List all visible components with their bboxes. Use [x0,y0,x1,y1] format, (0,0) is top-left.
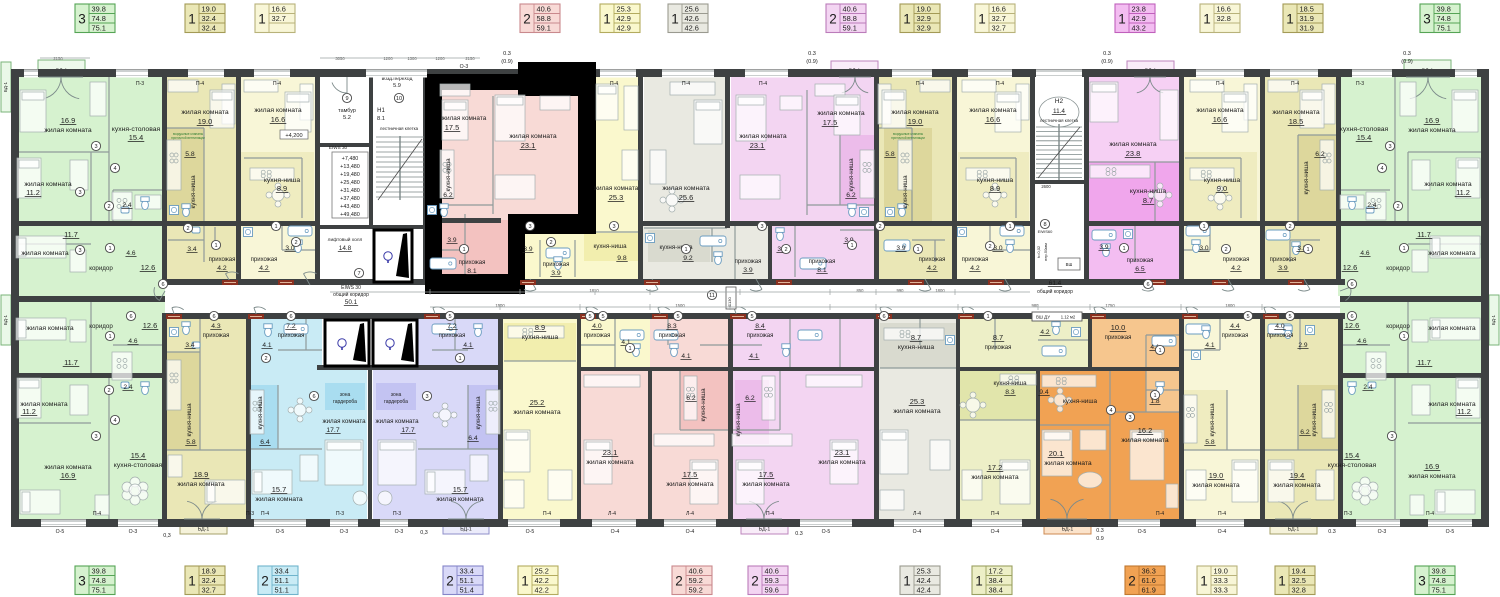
svg-text:EIWS 30: EIWS 30 [329,145,348,150]
svg-text:+13,480: +13,480 [340,164,360,170]
svg-text:БД-1: БД-1 [3,314,8,325]
svg-text:1: 1 [108,334,111,340]
svg-text:1: 1 [1402,246,1405,252]
svg-text:5: 5 [676,314,679,320]
svg-text:25.2: 25.2 [535,567,549,576]
svg-text:16.6: 16.6 [271,115,285,124]
svg-text:кухня-ниша: кухня-ниша [257,396,264,430]
svg-text:4.2: 4.2 [1040,329,1049,336]
svg-text:61.6: 61.6 [1142,576,1156,585]
svg-text:кухня-ниша: кухня-ниша [264,177,301,184]
svg-text:40.6: 40.6 [537,5,551,14]
svg-text:2: 2 [1224,247,1227,253]
svg-text:H1: H1 [377,108,385,114]
svg-text:2: 2 [1396,204,1399,210]
svg-text:4: 4 [113,166,116,172]
svg-text:жилая комната: жилая комната [1121,437,1169,444]
svg-text:12.6: 12.6 [141,263,155,272]
svg-text:43.2: 43.2 [1132,24,1146,33]
svg-text:прихожая: прихожая [209,257,236,263]
svg-text:4.6: 4.6 [1360,250,1369,257]
svg-text:П-4: П-4 [1218,511,1226,517]
svg-text:1: 1 [978,11,986,26]
svg-text:33.4: 33.4 [460,567,474,576]
svg-text:3.9: 3.9 [896,245,905,252]
svg-text:1: 1 [1278,573,1286,588]
svg-text:1: 1 [603,11,611,26]
svg-text:39.8: 39.8 [1437,5,1451,14]
svg-text:П-4: П-4 [196,81,204,87]
svg-text:2150: 2150 [465,56,475,61]
svg-text:8.7: 8.7 [1143,196,1153,205]
svg-text:П-3: П-3 [1344,511,1352,517]
svg-text:П-4: П-4 [759,81,767,87]
svg-text:11.2: 11.2 [1457,407,1471,416]
svg-text:1: 1 [986,314,989,320]
svg-text:Л-4: Л-4 [608,511,616,517]
svg-text:12.6: 12.6 [1345,321,1359,330]
svg-text:8.9: 8.9 [535,323,545,332]
svg-text:1: 1 [1202,224,1205,230]
svg-text:39.8: 39.8 [92,5,106,14]
svg-text:БД-1: БД-1 [1288,527,1300,533]
svg-text:О-3: О-3 [340,529,349,535]
svg-text:(0.9): (0.9) [806,59,818,65]
svg-text:4.2: 4.2 [259,265,269,272]
svg-text:+43,480: +43,480 [340,204,360,210]
svg-text:БД-1: БД-1 [759,527,771,533]
svg-text:2: 2 [523,11,531,26]
svg-text:7.2: 7.2 [286,323,296,330]
svg-text:1: 1 [684,247,687,253]
svg-text:2: 2 [107,204,110,210]
svg-text:2: 2 [261,573,269,588]
svg-text:58.8: 58.8 [537,14,551,23]
svg-text:42.2: 42.2 [535,576,549,585]
svg-text:кухня-ниша: кухня-ниша [522,334,559,341]
svg-text:15.4: 15.4 [1357,133,1371,142]
svg-text:2: 2 [675,573,683,588]
svg-text:3: 3 [425,394,428,400]
svg-text:12.6: 12.6 [1343,263,1357,272]
svg-text:2: 2 [829,11,837,26]
svg-text:25.6: 25.6 [685,5,699,14]
svg-text:1: 1 [1306,247,1309,253]
svg-text:19.0: 19.0 [908,117,922,126]
svg-text:1: 1 [903,573,911,588]
svg-text:+37,480: +37,480 [340,196,360,202]
svg-text:61.4: 61.4 [1049,280,1062,287]
svg-text:5: 5 [1288,314,1291,320]
svg-text:42.2: 42.2 [535,586,549,595]
svg-text:2: 2 [107,388,110,394]
svg-text:прихожая: прихожая [203,333,230,339]
svg-text:О-4: О-4 [686,529,695,535]
svg-text:3.9: 3.9 [1099,244,1108,251]
svg-text:19.0: 19.0 [202,5,216,14]
svg-text:4.1: 4.1 [262,342,271,349]
svg-text:19.0: 19.0 [198,117,212,126]
svg-text:жилая комната: жилая комната [44,464,92,471]
svg-text:17.7: 17.7 [326,427,339,434]
svg-text:2: 2 [186,226,189,232]
svg-text:5.9: 5.9 [393,83,401,89]
svg-text:16.9: 16.9 [1425,462,1439,471]
svg-text:П-4: П-4 [1216,81,1224,87]
svg-text:жилая комната: жилая комната [255,496,303,503]
svg-text:25.3: 25.3 [617,5,631,14]
svg-text:О-3: О-3 [129,529,138,535]
svg-text:4.6: 4.6 [126,250,135,257]
svg-text:h=0,02: h=0,02 [1036,245,1041,258]
svg-text:6.5: 6.5 [1135,266,1145,273]
svg-text:59.6: 59.6 [765,586,779,595]
svg-text:лестничная клетка: лестничная клетка [380,126,419,131]
svg-text:П-4: П-4 [1426,511,1434,517]
svg-text:БД-1: БД-1 [198,527,210,533]
svg-text:кухня-ниша: кухня-ниша [1303,161,1310,195]
svg-text:17.5: 17.5 [445,123,459,132]
svg-text:П-3: П-3 [246,511,254,517]
svg-text:0.3: 0.3 [808,51,816,57]
svg-text:1: 1 [1118,11,1126,26]
svg-text:32.9: 32.9 [917,24,931,33]
svg-text:0.9: 0.9 [1096,536,1104,542]
svg-text:19.0: 19.0 [1214,567,1228,576]
svg-text:16.6: 16.6 [1217,5,1231,14]
svg-text:51.1: 51.1 [460,576,474,585]
svg-text:жилая комната: жилая комната [1428,250,1476,257]
svg-text:17.2: 17.2 [989,567,1003,576]
svg-text:3.9: 3.9 [447,237,456,244]
svg-text:74.8: 74.8 [92,576,106,585]
svg-text:1: 1 [628,346,631,352]
svg-text:2: 2 [294,240,297,246]
svg-text:П-4: П-4 [273,81,281,87]
svg-text:3.9: 3.9 [551,270,561,277]
svg-text:жилая комната: жилая комната [1044,460,1092,467]
svg-text:1: 1 [1158,348,1161,354]
svg-text:коридор: коридор [89,323,113,330]
svg-text:16.9: 16.9 [1425,116,1439,125]
svg-text:4.1: 4.1 [749,353,758,360]
svg-text:Л-4: Л-4 [686,511,694,517]
svg-text:4.2: 4.2 [1231,265,1241,272]
svg-text:11.4: 11.4 [1053,108,1065,115]
svg-text:1: 1 [671,11,679,26]
svg-text:18.5: 18.5 [1300,5,1314,14]
svg-text:8.9: 8.9 [990,184,1000,193]
svg-text:1.12 м2: 1.12 м2 [1061,315,1076,320]
svg-text:2: 2 [1128,573,1136,588]
svg-text:кухня-ниша: кухня-ниша [1063,398,1098,405]
svg-text:36.3: 36.3 [1142,567,1156,576]
svg-text:прихожая: прихожая [919,257,946,263]
svg-text:жилая комната: жилая комната [586,459,634,466]
svg-text:42.6: 42.6 [685,24,699,33]
svg-text:3.0: 3.0 [1199,245,1208,252]
svg-text:2: 2 [878,224,881,230]
svg-text:32.4: 32.4 [202,14,216,23]
svg-text:16.2: 16.2 [1138,426,1152,435]
svg-text:17.5: 17.5 [823,118,837,127]
svg-text:5: 5 [601,314,604,320]
svg-text:8.4: 8.4 [755,323,765,330]
svg-text:2600: 2600 [1041,184,1051,189]
svg-text:жилая комната: жилая комната [742,481,790,488]
svg-text:23.1: 23.1 [603,448,617,457]
svg-text:жилая комната: жилая комната [1196,107,1244,114]
svg-text:прихожая: прихожая [439,333,466,339]
svg-text:16.6: 16.6 [986,115,1000,124]
svg-text:лифтовый холл: лифтовый холл [328,236,363,243]
svg-text:2: 2 [1288,224,1291,230]
svg-text:3: 3 [1423,11,1431,26]
svg-text:20.1: 20.1 [1049,449,1063,458]
svg-text:жилая комната: жилая комната [26,325,74,332]
svg-text:59.1: 59.1 [843,24,857,33]
svg-text:61.9: 61.9 [1142,586,1156,595]
svg-text:прихожая: прихожая [962,257,989,263]
svg-text:EIWS 30: EIWS 30 [341,285,361,291]
svg-text:23.8: 23.8 [1132,5,1146,14]
svg-text:2.4: 2.4 [122,202,131,209]
svg-text:33.3: 33.3 [1214,586,1228,595]
svg-text:3: 3 [1128,415,1131,421]
svg-text:5.8: 5.8 [885,151,895,158]
svg-text:+4,200: +4,200 [285,133,302,139]
svg-text:жилая комната: жилая комната [21,250,69,257]
svg-text:42.9: 42.9 [617,14,631,23]
svg-text:2: 2 [751,573,759,588]
svg-text:32.7: 32.7 [992,14,1006,23]
svg-text:1: 1 [521,573,529,588]
svg-text:гардероба: гардероба [333,399,357,405]
svg-text:0.3: 0.3 [1096,528,1104,534]
svg-text:42.9: 42.9 [617,24,631,33]
svg-text:25.3: 25.3 [609,193,623,202]
svg-text:(0.9): (0.9) [1401,59,1413,65]
svg-text:прихожая: прихожая [1267,333,1294,339]
svg-text:О-4: О-4 [991,529,1000,535]
svg-text:О-3: О-3 [1378,529,1387,535]
svg-text:6.2: 6.2 [1300,429,1310,436]
svg-text:3: 3 [1418,573,1426,588]
svg-text:пер.50мм: пер.50мм [1043,243,1048,261]
svg-text:кухня-ниша: кухня-ниша [1311,403,1318,437]
svg-text:25.3: 25.3 [910,397,924,406]
svg-text:жилая комната: жилая комната [181,109,229,116]
svg-text:2.4: 2.4 [1367,202,1376,209]
svg-text:40.6: 40.6 [843,5,857,14]
svg-text:4.4: 4.4 [1230,323,1240,330]
svg-text:кухня-ниша: кухня-ниша [848,158,855,192]
svg-text:11.7: 11.7 [64,358,78,367]
svg-text:38.4: 38.4 [989,576,1003,585]
svg-text:17.7: 17.7 [401,427,414,434]
svg-text:П-4: П-4 [766,511,774,517]
svg-text:3: 3 [78,248,81,254]
svg-text:18.5: 18.5 [1289,117,1303,126]
svg-text:16.9: 16.9 [61,471,75,480]
svg-text:жилая комната: жилая комната [817,110,865,117]
svg-text:33.4: 33.4 [275,567,289,576]
svg-text:П-4: П-4 [996,81,1004,87]
svg-text:32.8: 32.8 [1292,586,1306,595]
svg-text:3.9: 3.9 [743,267,753,274]
svg-text:кухня-ниша: кухня-ниша [190,175,197,209]
svg-text:3.4: 3.4 [187,246,196,253]
svg-text:жилая комната: жилая комната [436,496,484,503]
svg-text:1: 1 [458,356,461,362]
svg-text:75.1: 75.1 [92,24,106,33]
svg-text:39.8: 39.8 [1432,567,1446,576]
svg-text:П-4: П-4 [610,81,618,87]
svg-text:75.1: 75.1 [1437,24,1451,33]
svg-text:10.0: 10.0 [1111,323,1125,332]
svg-text:коридор: коридор [89,265,113,272]
svg-text:П-4: П-4 [93,511,101,517]
svg-text:16.6: 16.6 [992,5,1006,14]
svg-text:5: 5 [750,314,753,320]
svg-text:жилая комната: жилая комната [322,418,366,425]
svg-text:жилая комната: жилая комната [969,107,1017,114]
svg-text:4.0: 4.0 [592,323,602,330]
svg-text:42.9: 42.9 [1132,14,1146,23]
svg-text:33.3: 33.3 [1214,576,1228,585]
svg-text:жилая комната: жилая комната [594,185,639,192]
svg-text:0,3: 0,3 [163,533,171,539]
svg-text:6.2: 6.2 [1315,151,1325,158]
svg-text:БД-1: БД-1 [1491,314,1496,325]
svg-text:О-3: О-3 [460,64,469,70]
svg-text:кухня-ниша: кухня-ниша [700,388,707,422]
svg-text:23.1: 23.1 [750,141,764,150]
svg-text:6: 6 [1350,314,1353,320]
svg-text:6: 6 [312,394,315,400]
svg-text:40.6: 40.6 [765,567,779,576]
svg-text:15.4: 15.4 [1345,451,1359,460]
svg-text:58.8: 58.8 [843,14,857,23]
svg-text:кухня-столовая: кухня-столовая [114,462,163,469]
svg-text:32.4: 32.4 [202,24,216,33]
svg-text:П-4: П-4 [682,81,690,87]
svg-text:прихожая: прихожая [543,262,570,268]
svg-text:О-5: О-5 [1446,529,1455,535]
svg-text:1: 1 [975,573,983,588]
svg-text:кухня-ниша: кухня-ниша [475,396,482,430]
svg-text:1: 1 [850,243,853,249]
svg-text:1: 1 [188,11,196,26]
svg-text:H2: H2 [1055,98,1064,105]
svg-text:23.1: 23.1 [521,141,535,150]
svg-text:П-4: П-4 [1291,81,1299,87]
svg-text:кухня-ниша: кухня-ниша [593,243,627,250]
svg-text:+19,480: +19,480 [340,172,360,178]
svg-text:кухня-ниша: кухня-ниша [1209,403,1216,437]
svg-text:1: 1 [1200,573,1208,588]
svg-text:1: 1 [1008,224,1011,230]
svg-text:коридор: коридор [1386,265,1410,272]
svg-text:3: 3 [528,224,531,230]
svg-text:кухня-ниша: кухня-ниша [735,403,742,437]
svg-text:0.3: 0.3 [1103,51,1111,57]
svg-text:О-5: О-5 [526,529,535,535]
svg-text:32.4: 32.4 [202,576,216,585]
svg-text:42.4: 42.4 [917,586,931,595]
svg-text:32.7: 32.7 [272,14,286,23]
svg-text:+31,480: +31,480 [340,188,360,194]
svg-text:жилая комната: жилая комната [254,107,302,114]
svg-text:18.9: 18.9 [202,567,216,576]
svg-text:9.2: 9.2 [683,255,693,262]
svg-text:П-3: П-3 [336,511,344,517]
svg-text:39.8: 39.8 [92,567,106,576]
svg-text:6: 6 [882,314,885,320]
svg-text:О-5: О-5 [1138,529,1147,535]
svg-text:11.2: 11.2 [22,407,36,416]
svg-text:16.9: 16.9 [61,116,75,125]
svg-text:12.6: 12.6 [143,321,157,330]
svg-text:жилая комната: жилая комната [1272,109,1320,116]
svg-text:+25,480: +25,480 [340,180,360,186]
svg-text:приточной вентиляции: приточной вентиляции [891,136,925,140]
svg-text:жилая комната: жилая комната [666,481,714,488]
svg-text:9: 9 [345,96,348,102]
svg-text:5.8: 5.8 [1205,439,1215,446]
svg-text:19.0: 19.0 [1209,471,1223,480]
svg-text:кухня-ниша: кухня-ниша [902,175,909,209]
svg-text:9.0: 9.0 [1217,184,1227,193]
svg-text:1: 1 [274,224,277,230]
svg-text:прихожая: прихожая [1222,333,1249,339]
svg-text:5.8: 5.8 [186,439,196,446]
svg-text:8: 8 [1043,222,1046,228]
svg-text:1200: 1200 [435,56,445,61]
svg-text:О-4: О-4 [1218,529,1227,535]
svg-text:прихожая: прихожая [459,260,486,266]
svg-text:П-3: П-3 [393,511,401,517]
svg-text:кухня-столовая: кухня-столовая [1328,462,1377,469]
svg-text:8.1: 8.1 [467,268,477,275]
svg-text:4: 4 [1109,408,1112,414]
svg-text:32.9: 32.9 [917,14,931,23]
svg-text:6.4: 6.4 [260,439,270,446]
svg-text:8.7: 8.7 [911,333,921,342]
svg-text:кухня-столовая: кухня-столовая [1340,126,1389,133]
svg-text:51.1: 51.1 [275,576,289,585]
svg-text:6: 6 [129,314,132,320]
svg-text:зона: зона [340,392,351,398]
svg-text:59.1: 59.1 [537,24,551,33]
svg-text:25.3: 25.3 [917,567,931,576]
svg-text:БД-1: БД-1 [460,527,472,533]
svg-text:кухня-ниша: кухня-ниша [977,177,1014,184]
svg-text:11.2: 11.2 [1456,188,1470,197]
svg-text:зона: зона [391,392,402,398]
svg-text:15.7: 15.7 [272,485,286,494]
svg-text:кухня-ниша: кухня-ниша [445,158,452,192]
svg-text:БД-1: БД-1 [3,81,8,92]
svg-text:О-5: О-5 [56,529,65,535]
svg-text:4.3: 4.3 [211,323,221,330]
svg-text:2: 2 [446,573,454,588]
svg-text:18.9: 18.9 [194,470,208,479]
svg-text:прихожая: прихожая [1127,258,1154,264]
svg-text:0.3: 0.3 [503,51,511,57]
svg-text:31.9: 31.9 [1300,24,1314,33]
svg-text:6.4: 6.4 [468,435,478,442]
